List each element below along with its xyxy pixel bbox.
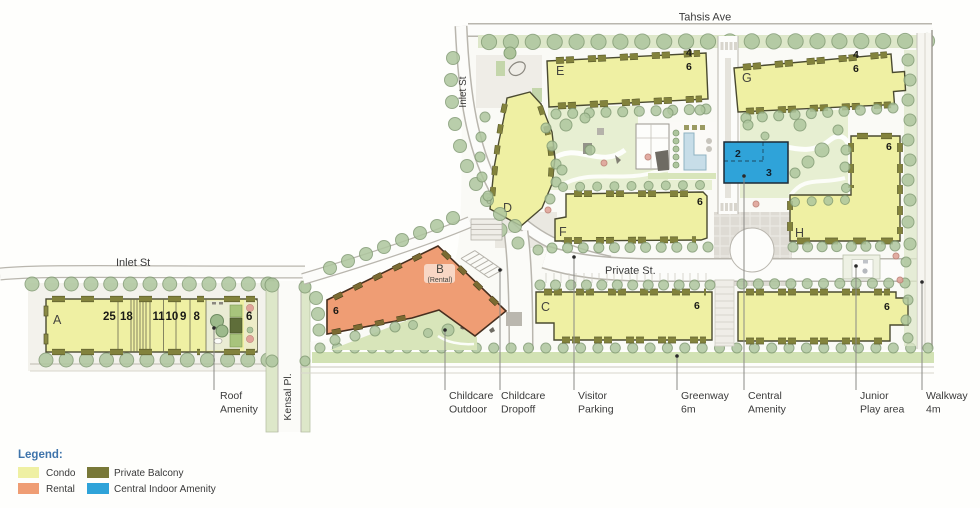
svg-text:6: 6: [886, 141, 892, 153]
svg-text:E: E: [556, 64, 564, 78]
svg-text:Play area: Play area: [860, 404, 905, 416]
svg-text:(Rental): (Rental): [428, 277, 453, 284]
svg-text:Tahsis Ave: Tahsis Ave: [679, 12, 731, 24]
svg-text:6: 6: [686, 61, 692, 73]
svg-text:Rental: Rental: [46, 484, 75, 495]
svg-text:Parking: Parking: [578, 404, 614, 416]
svg-text:6: 6: [246, 311, 252, 323]
svg-text:Central Indoor Amenity: Central Indoor Amenity: [114, 484, 216, 495]
svg-text:H: H: [795, 226, 804, 240]
svg-text:C: C: [541, 300, 550, 314]
svg-text:Amenity: Amenity: [748, 404, 787, 416]
svg-text:18: 18: [120, 311, 133, 323]
svg-text:Private Balcony: Private Balcony: [114, 468, 183, 479]
svg-text:6: 6: [333, 305, 339, 317]
svg-text:Legend:: Legend:: [18, 449, 63, 461]
svg-text:25: 25: [103, 311, 116, 323]
svg-text:Outdoor: Outdoor: [449, 404, 487, 416]
svg-text:6: 6: [853, 63, 859, 75]
svg-text:Junior: Junior: [860, 390, 889, 402]
svg-text:2: 2: [735, 148, 741, 160]
svg-text:Childcare: Childcare: [449, 390, 494, 402]
svg-text:Inlet St: Inlet St: [458, 76, 469, 107]
svg-text:Roof: Roof: [220, 390, 242, 402]
svg-text:6m: 6m: [681, 404, 696, 416]
svg-text:11: 11: [153, 311, 166, 323]
svg-text:Central: Central: [748, 390, 782, 402]
svg-text:F: F: [559, 225, 567, 239]
svg-text:9: 9: [180, 311, 186, 323]
svg-text:6: 6: [697, 196, 703, 208]
svg-text:A: A: [53, 313, 62, 327]
svg-text:Inlet St: Inlet St: [116, 257, 150, 269]
svg-text:B: B: [436, 264, 444, 276]
svg-text:10: 10: [166, 311, 179, 323]
svg-text:6: 6: [694, 300, 700, 312]
svg-text:3: 3: [766, 167, 772, 179]
svg-text:6: 6: [884, 301, 890, 313]
svg-text:8: 8: [194, 311, 201, 323]
svg-text:Kensal Pl.: Kensal Pl.: [282, 373, 294, 420]
svg-text:4: 4: [686, 47, 692, 59]
svg-text:Condo: Condo: [46, 468, 76, 479]
svg-text:4: 4: [853, 49, 859, 61]
svg-text:Visitor: Visitor: [578, 390, 607, 402]
svg-text:Childcare: Childcare: [501, 390, 546, 402]
svg-text:Greenway: Greenway: [681, 390, 730, 402]
svg-text:G: G: [742, 71, 752, 85]
svg-text:4m: 4m: [926, 404, 941, 416]
svg-text:Dropoff: Dropoff: [501, 404, 535, 416]
svg-text:Amenity: Amenity: [220, 404, 259, 416]
svg-text:Walkway: Walkway: [926, 390, 968, 402]
